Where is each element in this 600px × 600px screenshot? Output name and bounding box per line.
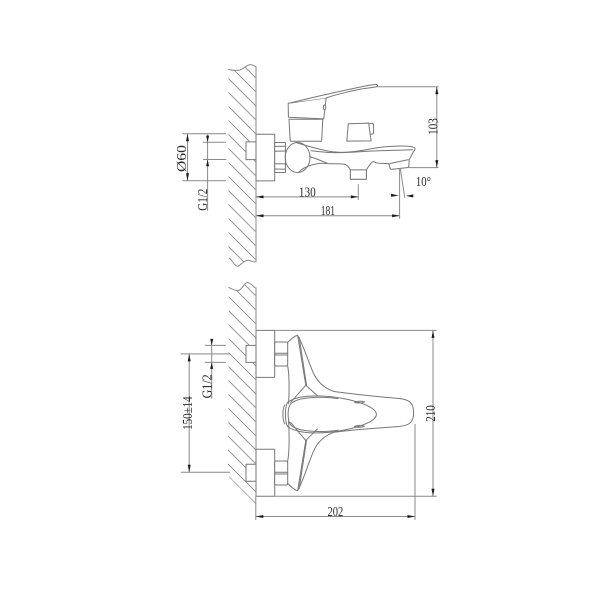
svg-text:150±14: 150±14 [180, 396, 195, 430]
svg-text:G1/2: G1/2 [195, 189, 210, 211]
svg-text:G1/2: G1/2 [199, 374, 214, 398]
svg-text:Ø60: Ø60 [175, 145, 190, 172]
svg-text:181: 181 [321, 204, 335, 219]
svg-text:202: 202 [328, 505, 344, 520]
svg-text:10°: 10° [416, 175, 431, 190]
svg-text:210: 210 [424, 405, 439, 422]
svg-text:130: 130 [299, 185, 316, 200]
svg-text:103: 103 [427, 118, 442, 135]
